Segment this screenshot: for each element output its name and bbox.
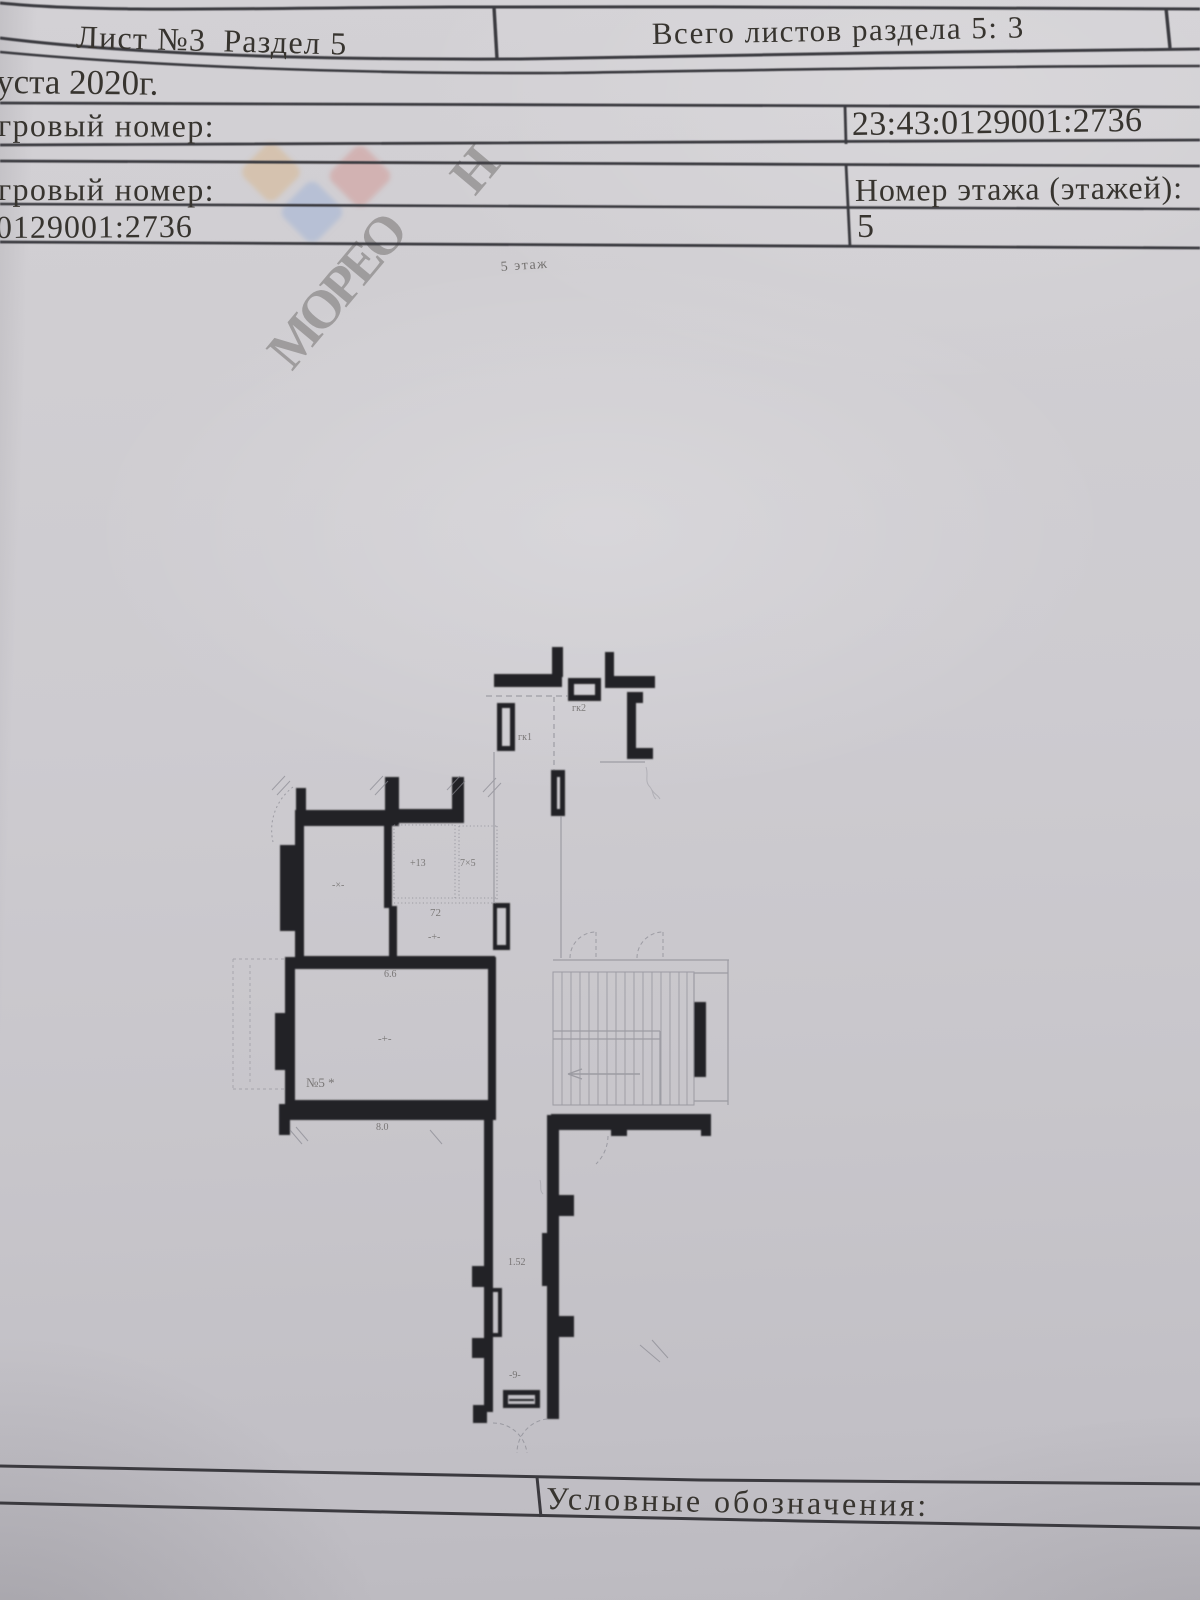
svg-text:8.0: 8.0 [376,1122,389,1133]
svg-text:Н: Н [438,134,511,205]
svg-text:гровый номер:: гровый номер: [0,107,215,144]
svg-text:0129001:2736: 0129001:2736 [0,208,193,245]
svg-text:гк2: гк2 [572,703,586,714]
svg-text:-9-: -9- [509,1370,521,1381]
svg-text:-+-: -+- [378,1033,392,1045]
svg-text:+13: +13 [410,858,426,869]
svg-text:72: 72 [430,907,441,919]
svg-text:6.6: 6.6 [384,969,397,980]
svg-text:7×5: 7×5 [460,858,476,869]
svg-text:МОРЕО: МОРЕО [255,202,418,380]
svg-text:-+-: -+- [428,932,440,943]
svg-text:Номер этажа (этажей):: Номер этажа (этажей): [855,169,1183,208]
svg-text:-×-: -×- [332,880,344,891]
svg-text:23:43:0129001:2736: 23:43:0129001:2736 [852,102,1143,143]
svg-text:уста 2020г.: уста 2020г. [0,62,159,103]
svg-text:Всего листов раздела 5: 3: Всего листов раздела 5: 3 [652,9,1025,51]
svg-text:5: 5 [857,208,874,245]
svg-text:гк1: гк1 [518,732,532,743]
svg-text:Условные обозначения:: Условные обозначения: [546,1480,930,1523]
svg-text:5 этаж: 5 этаж [500,257,549,275]
svg-text:№5 *: №5 * [306,1075,335,1090]
svg-text:Лист №3 Раздел 5: Лист №3 Раздел 5 [76,19,348,62]
svg-text:1.52: 1.52 [508,1257,526,1268]
svg-text:гровый номер:: гровый номер: [0,171,215,208]
